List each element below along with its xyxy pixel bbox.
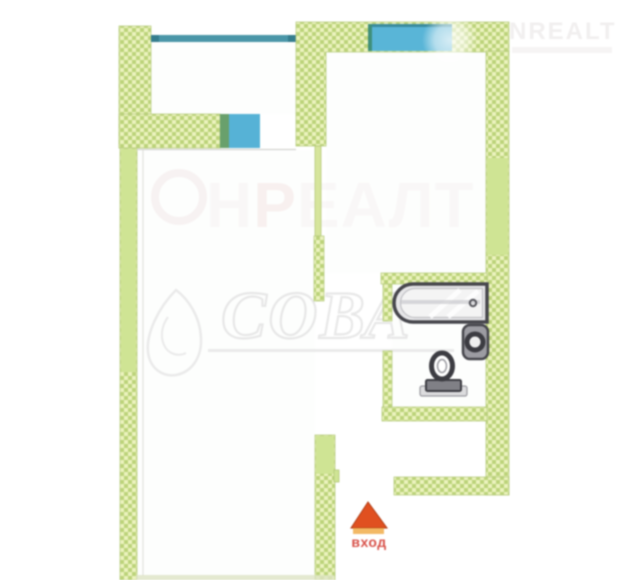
- svg-text:NREALT: NREALT: [509, 18, 617, 45]
- svg-text:НРЕАЛТ: НРЕАЛТ: [206, 169, 475, 241]
- svg-text:вход: вход: [351, 534, 386, 550]
